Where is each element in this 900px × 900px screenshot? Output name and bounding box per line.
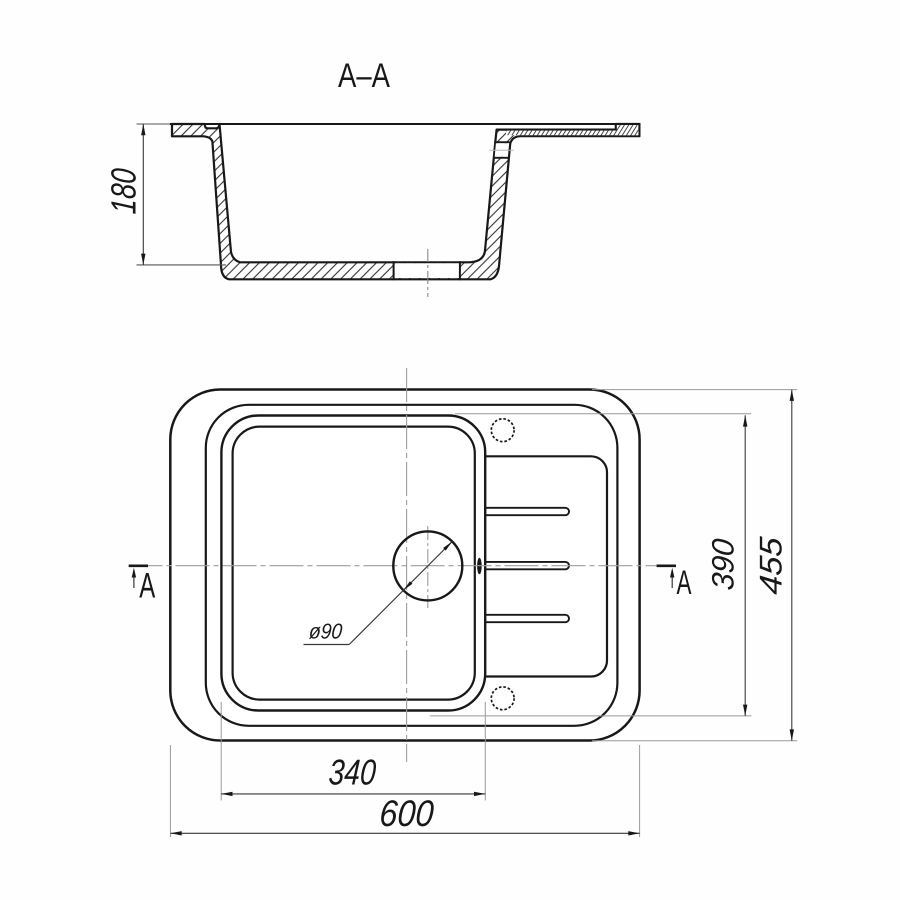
svg-text:A: A (139, 565, 155, 605)
svg-text:A–A: A–A (338, 57, 390, 95)
svg-text:455: 455 (753, 535, 789, 596)
svg-text:390: 390 (706, 536, 741, 591)
svg-text:340: 340 (327, 751, 377, 792)
svg-text:600: 600 (378, 792, 435, 834)
svg-text:180: 180 (104, 167, 143, 215)
svg-text:ø90: ø90 (308, 619, 343, 643)
svg-text:A: A (677, 564, 692, 602)
